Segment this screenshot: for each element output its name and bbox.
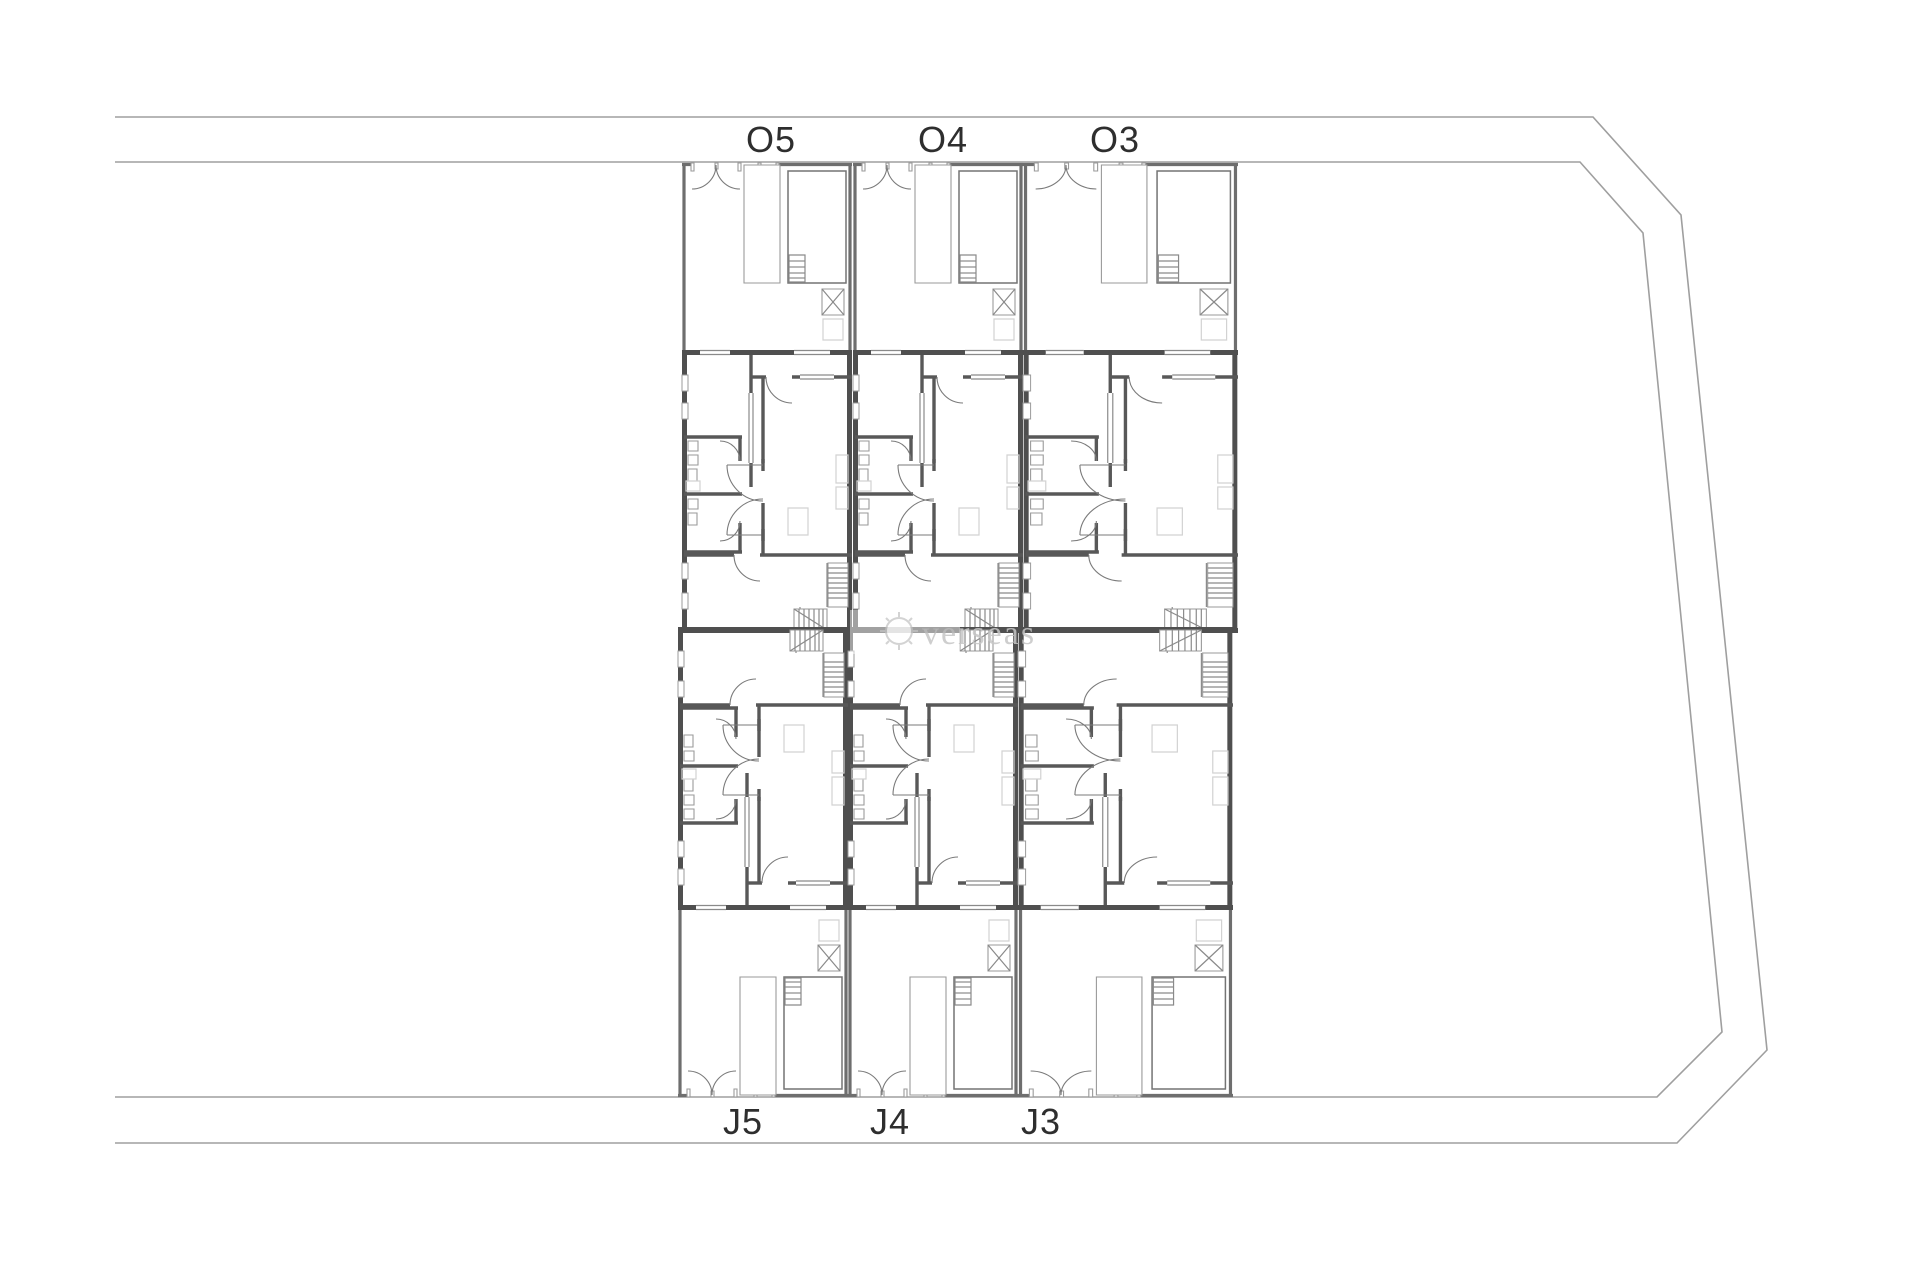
watermark: verseas (850, 610, 1036, 654)
unit-label-o5: O5 (746, 119, 796, 160)
unit-O4 (853, 163, 1023, 633)
unit-label-o4: O4 (918, 119, 968, 160)
unit-J5 (678, 627, 848, 1097)
floor-plan-canvas: O5 O4 O3 J5 J4 J3 verseas (0, 0, 1920, 1280)
unit-label-o3: O3 (1090, 119, 1140, 160)
unit-O3 (1023, 163, 1238, 633)
unit-O5 (682, 163, 852, 633)
unit-J4 (848, 627, 1018, 1097)
floor-plan-page: O5 O4 O3 J5 J4 J3 verseas (0, 0, 1920, 1280)
unit-J3 (1018, 627, 1233, 1097)
watermark-text: verseas (922, 615, 1036, 652)
unit-label-j4: J4 (870, 1101, 910, 1142)
unit-label-j5: J5 (723, 1101, 763, 1142)
unit-label-j3: J3 (1021, 1101, 1061, 1142)
